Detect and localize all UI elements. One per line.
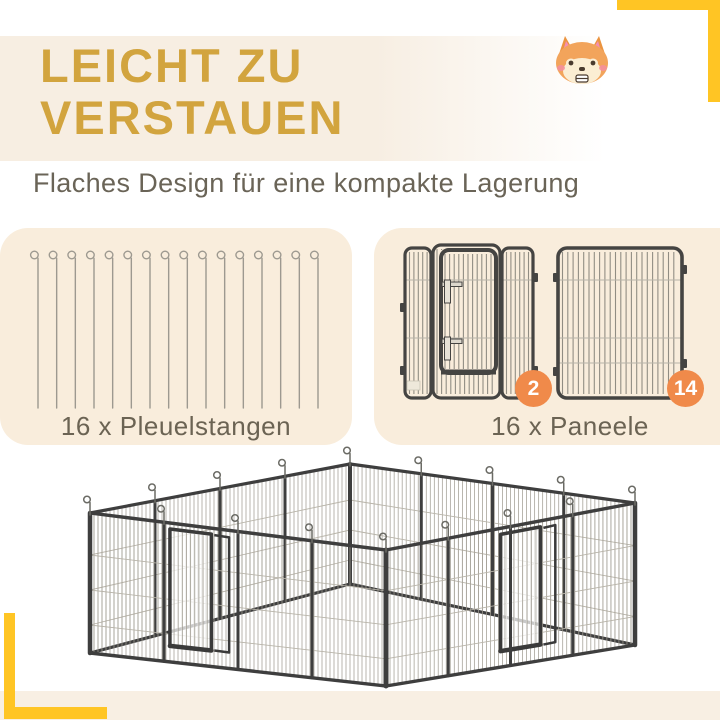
corner-accent-bottom-left-horizontal <box>4 707 107 719</box>
rods-illustration <box>0 228 352 445</box>
panels-illustration <box>374 228 720 445</box>
door-panel-count-badge: 2 <box>515 370 552 407</box>
subtitle: Flaches Design für eine kompakte Lagerun… <box>33 168 579 199</box>
plain-panel-count-badge: 14 <box>667 370 704 407</box>
page-title-line1: LEICHT ZU <box>40 39 303 92</box>
page-title-line2: VERSTAUEN <box>40 91 344 144</box>
page-title: LEICHT ZUVERSTAUEN <box>40 40 344 144</box>
assembled-pen-illustration <box>55 445 655 697</box>
corner-accent-top-right-vertical <box>708 0 720 102</box>
corner-accent-top-right-horizontal <box>617 0 720 10</box>
corgi-face-icon <box>554 33 610 85</box>
corner-accent-bottom-left-vertical <box>4 613 15 719</box>
